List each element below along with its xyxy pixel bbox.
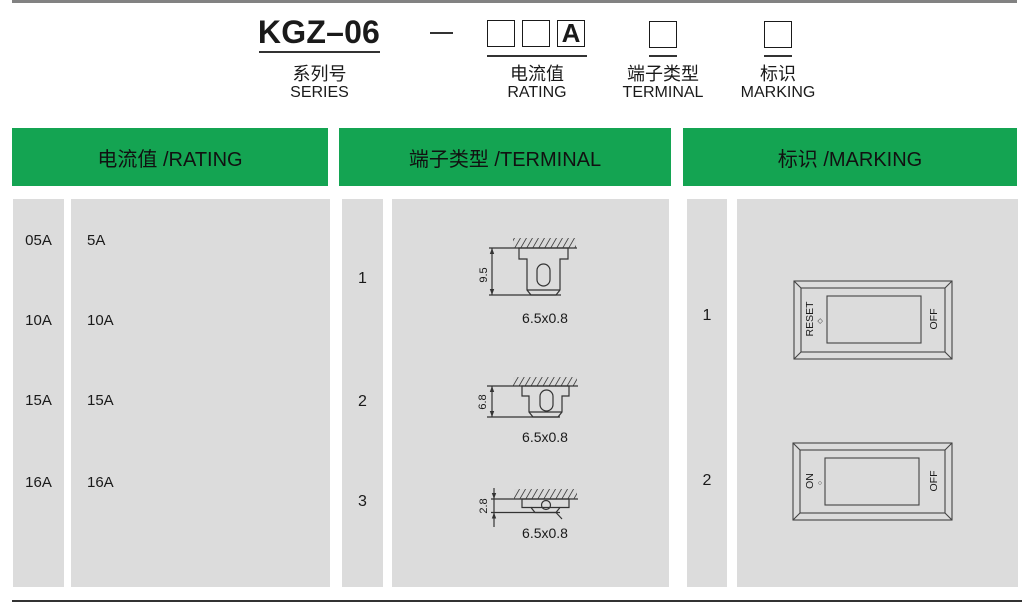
svg-text:9.5: 9.5 xyxy=(478,267,490,282)
svg-text:◇: ◇ xyxy=(817,318,824,324)
svg-text:6.5x0.8: 6.5x0.8 xyxy=(522,429,568,445)
svg-text:6.5x0.8: 6.5x0.8 xyxy=(522,310,568,326)
svg-text:RESET: RESET xyxy=(804,301,816,337)
svg-text:OFF: OFF xyxy=(928,471,940,492)
svg-text:ON: ON xyxy=(804,473,816,489)
svg-text:6.8: 6.8 xyxy=(477,394,489,409)
svg-text:6.5x0.8: 6.5x0.8 xyxy=(522,525,568,541)
svg-text:2.8: 2.8 xyxy=(478,498,490,513)
svg-text:○: ○ xyxy=(817,481,824,485)
svg-text:OFF: OFF xyxy=(928,309,940,330)
